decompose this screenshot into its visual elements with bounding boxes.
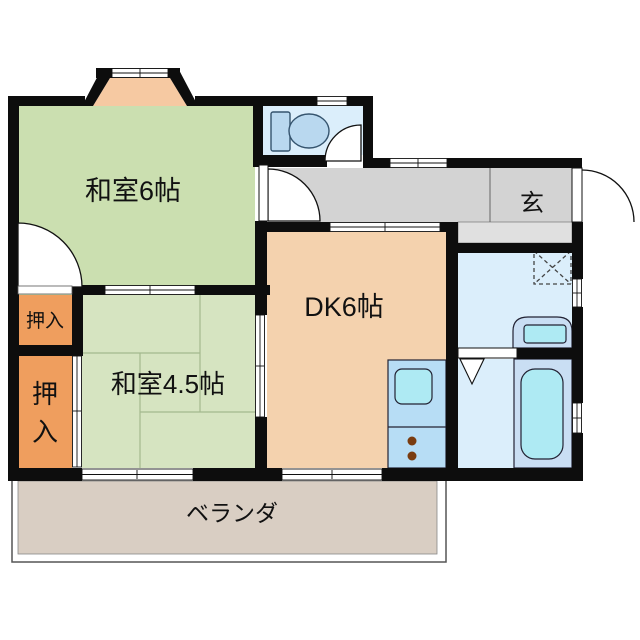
entrance-door-leaf (572, 168, 582, 222)
toilet-window (317, 97, 347, 106)
closet-lower (19, 356, 72, 468)
label-washitsu6: 和室6帖 (85, 176, 181, 206)
hallway-window (390, 159, 447, 168)
bay-window-sash (112, 69, 168, 78)
washitsu-sliding-door (105, 286, 195, 295)
dk-hallway-sliding-door (330, 223, 440, 232)
bathroom-window (573, 403, 582, 433)
floorplan-canvas: 和室6帖 和室4.5帖 DK6帖 玄 押入 押 入 ベランダ (0, 0, 640, 640)
kitchen-counter (388, 360, 446, 468)
kitchen-sink-icon (395, 369, 432, 404)
hallway-door-leaf (259, 165, 268, 221)
closet-door-opening (18, 286, 72, 294)
label-washitsu45: 和室4.5帖 (111, 369, 225, 399)
entrance-door-swing (582, 170, 634, 222)
label-genkan: 玄 (520, 190, 544, 217)
label-oshiire-lower-bottom: 入 (32, 417, 58, 447)
washbasin-icon (513, 317, 572, 348)
washitsu45-dk-sliding-door (256, 315, 265, 417)
label-oshiire-lower-top: 押 (32, 379, 58, 409)
closet-lower-sliding-door (73, 356, 82, 467)
label-oshiire-upper: 押入 (26, 310, 64, 332)
washroom-window (573, 279, 582, 307)
genkan-step (458, 222, 572, 243)
label-dk: DK6帖 (304, 292, 384, 322)
washitsu45-veranda-window (82, 469, 193, 480)
toilet-icon (271, 112, 329, 151)
label-veranda: ベランダ (186, 500, 278, 526)
floorplan-drawing: 和室6帖 和室4.5帖 DK6帖 玄 押入 押 入 ベランダ (0, 0, 640, 640)
dk-veranda-window (282, 469, 382, 480)
bathtub-icon (514, 359, 572, 468)
